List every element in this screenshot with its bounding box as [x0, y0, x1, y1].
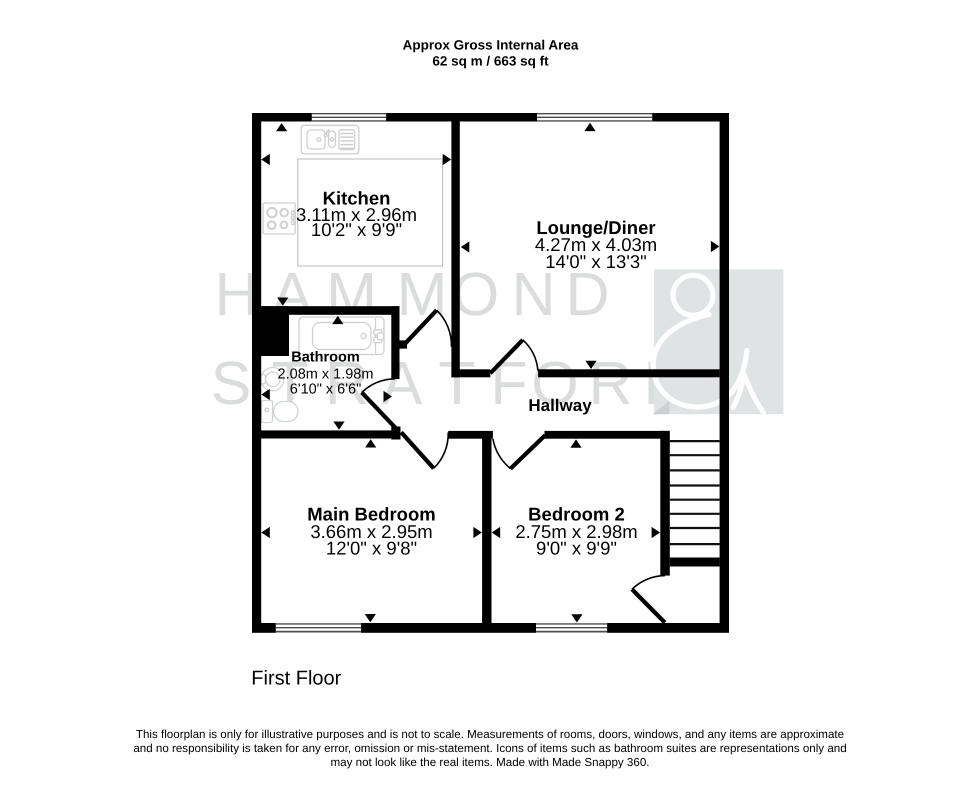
svg-text:M: M — [397, 260, 448, 328]
svg-text:Approx Gross Internal Area: Approx Gross Internal Area — [403, 38, 579, 53]
svg-text:12'0" x 9'8": 12'0" x 9'8" — [326, 538, 417, 559]
svg-text:H: H — [214, 260, 258, 328]
svg-text:14'0" x 13'3": 14'0" x 13'3" — [545, 251, 646, 272]
svg-text:First Floor: First Floor — [251, 668, 341, 690]
svg-text:Hallway: Hallway — [528, 396, 592, 415]
svg-text:2.08m x 1.98m: 2.08m x 1.98m — [278, 367, 374, 383]
svg-text:62 sq m / 663 sq ft: 62 sq m / 663 sq ft — [432, 53, 549, 68]
svg-text:This floorplan is only for ill: This floorplan is only for illustrative … — [136, 728, 844, 741]
svg-text:Bathroom: Bathroom — [291, 350, 359, 366]
svg-text:9'0" x 9'9": 9'0" x 9'9" — [536, 538, 617, 559]
svg-text:F: F — [490, 349, 527, 417]
svg-text:A: A — [382, 349, 423, 417]
svg-text:10'2" x 9'9": 10'2" x 9'9" — [311, 219, 402, 240]
svg-text:R: R — [588, 349, 632, 417]
svg-text:6'10" x 6'6": 6'10" x 6'6" — [290, 382, 361, 398]
svg-text:and no responsibility is taken: and no responsibility is taken for any e… — [133, 742, 846, 755]
svg-text:may not look like the real ite: may not look like the real items. Made w… — [331, 756, 650, 769]
svg-text:S: S — [211, 349, 252, 417]
